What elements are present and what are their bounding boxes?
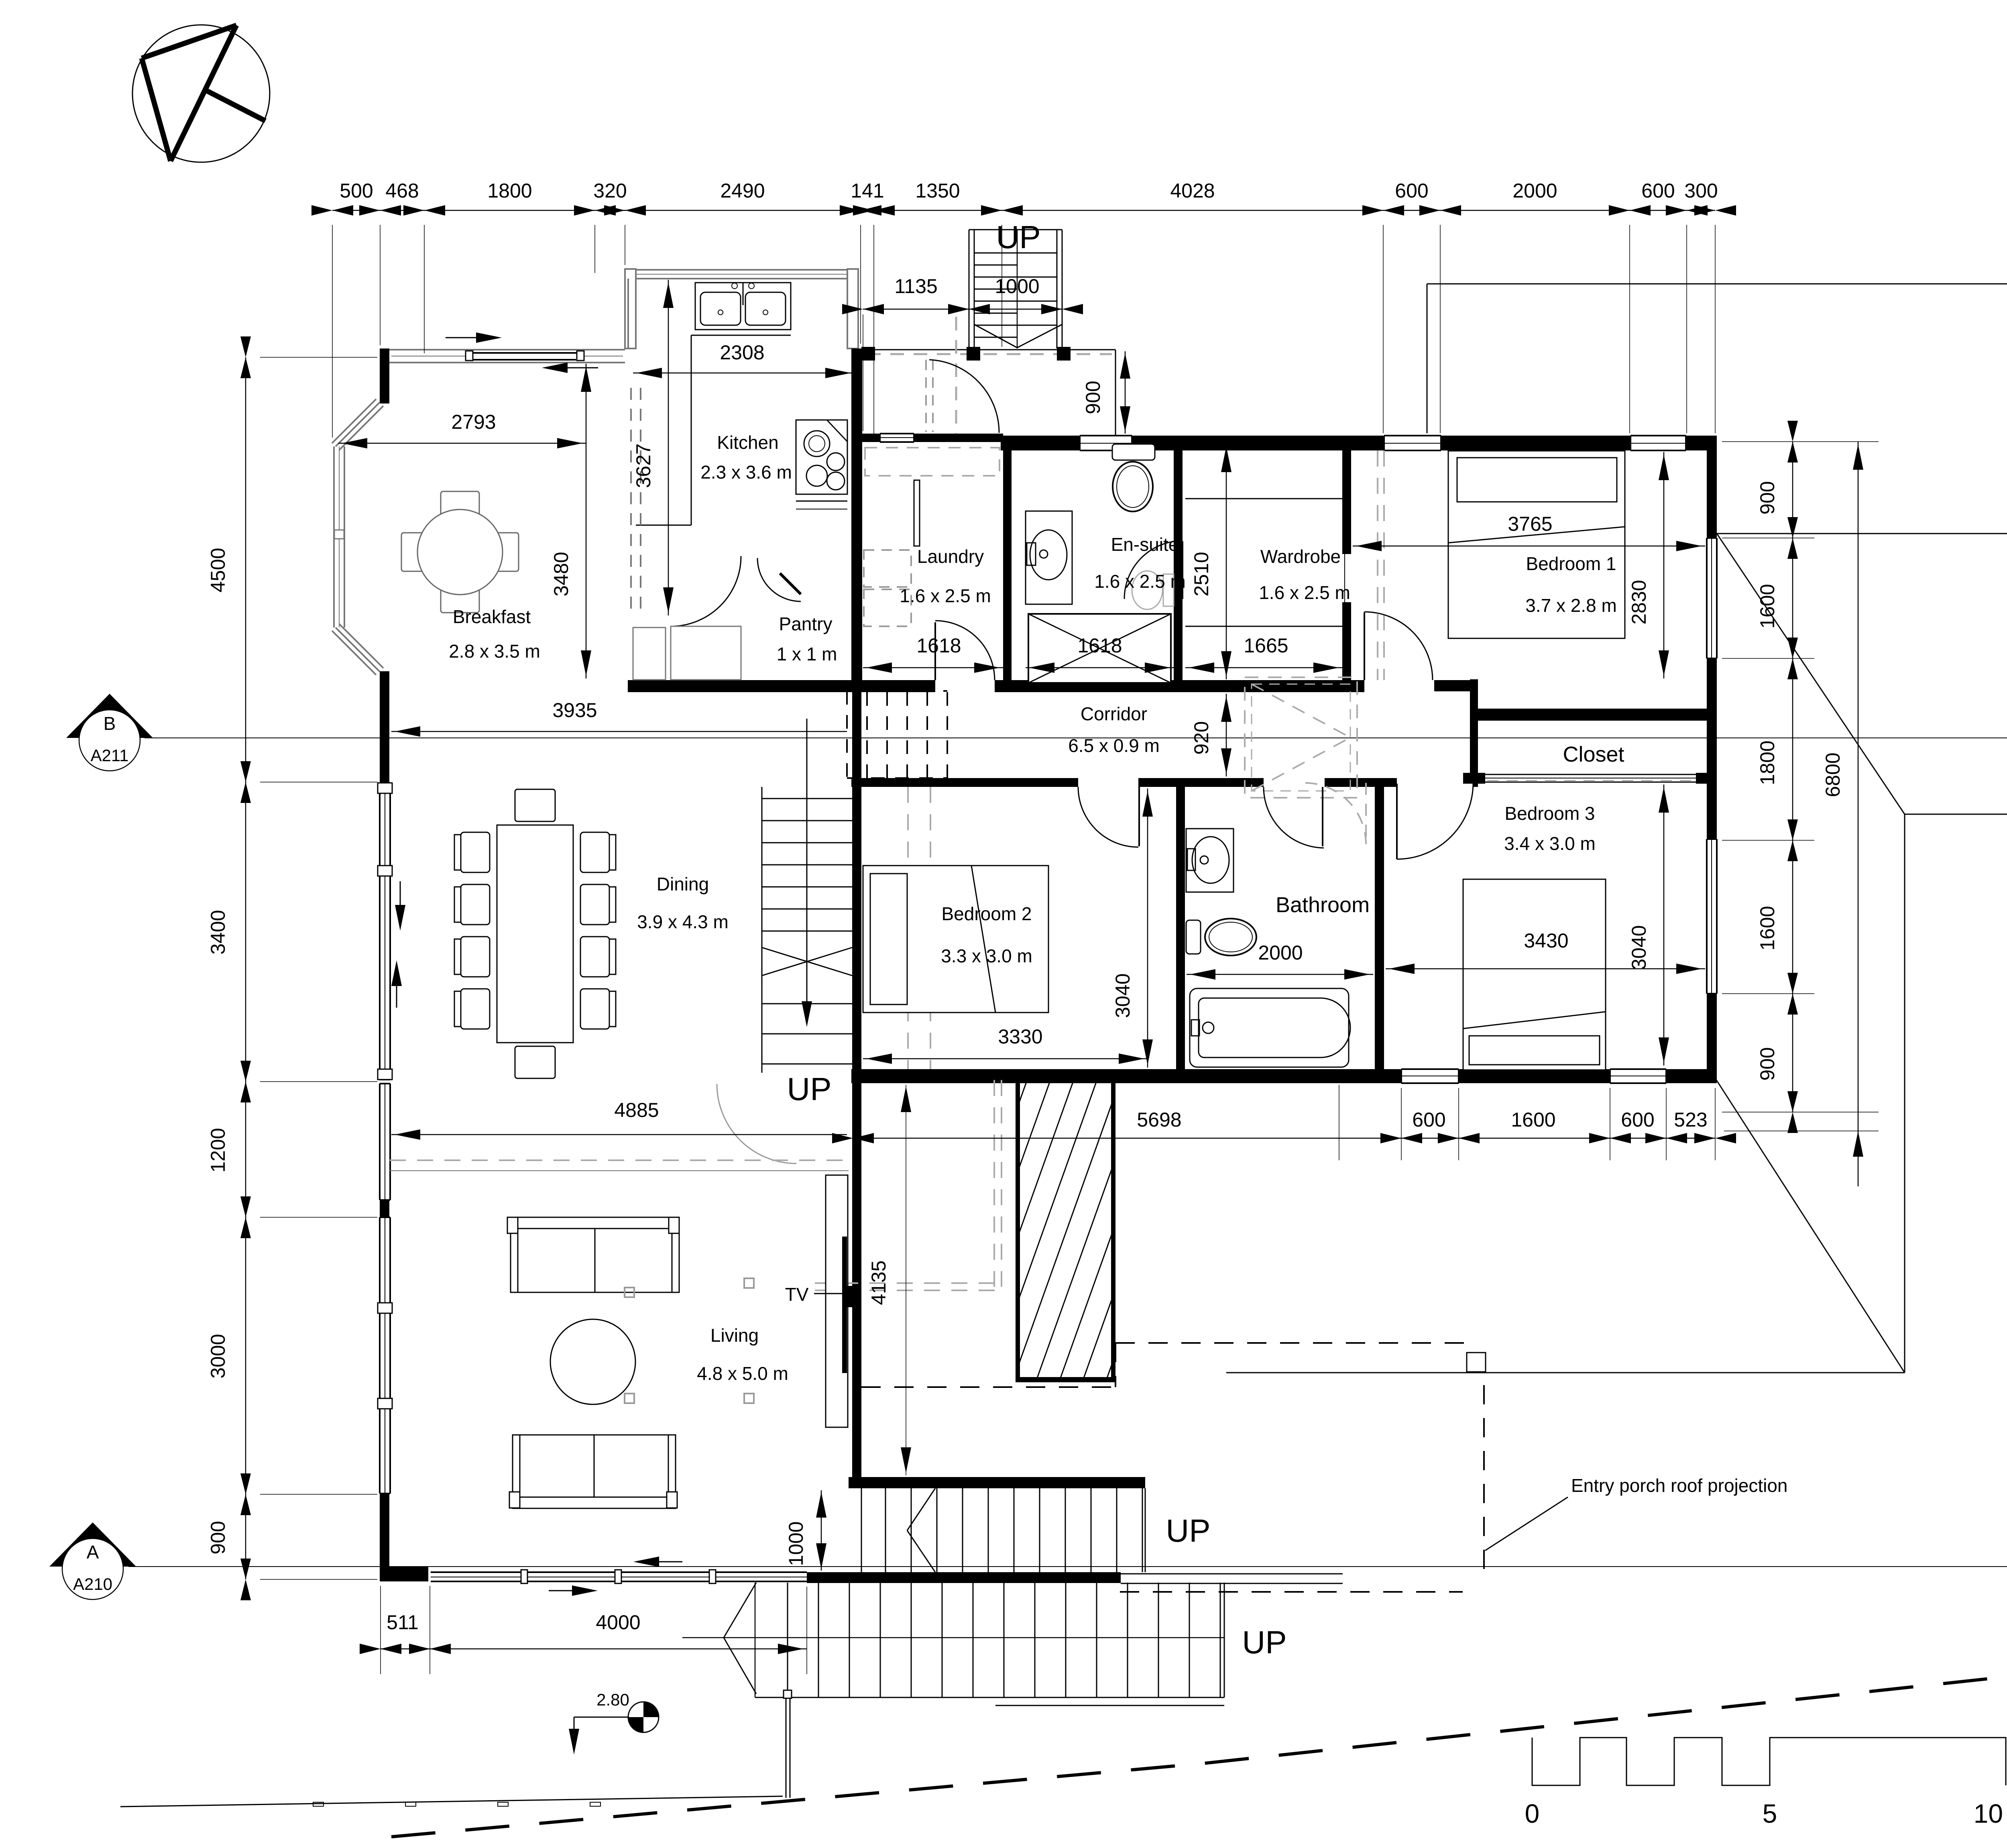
svg-text:Closet: Closet	[1563, 742, 1624, 766]
svg-text:Bathroom: Bathroom	[1276, 893, 1370, 917]
svg-text:1800: 1800	[487, 179, 532, 202]
svg-text:UP: UP	[787, 1071, 831, 1107]
svg-text:600: 600	[1395, 179, 1428, 202]
svg-text:4500: 4500	[207, 548, 229, 592]
svg-text:3765: 3765	[1508, 513, 1552, 535]
svg-text:900: 900	[1082, 381, 1104, 414]
svg-text:2490: 2490	[720, 179, 765, 202]
svg-text:1135: 1135	[894, 275, 938, 297]
svg-text:1600: 1600	[1756, 584, 1779, 628]
svg-text:4000: 4000	[596, 1611, 640, 1634]
svg-text:Wardrobe: Wardrobe	[1260, 546, 1341, 567]
svg-text:0: 0	[1525, 1799, 1540, 1828]
svg-text:320: 320	[593, 179, 627, 202]
svg-text:6800: 6800	[1822, 752, 1844, 797]
svg-text:5: 5	[1763, 1799, 1777, 1828]
svg-text:5698: 5698	[1137, 1108, 1181, 1131]
svg-text:Laundry: Laundry	[917, 546, 984, 567]
svg-text:Breakfast: Breakfast	[453, 606, 531, 627]
svg-text:2.8 x 3.5 m: 2.8 x 3.5 m	[449, 641, 540, 662]
svg-text:2.3 x 3.6 m: 2.3 x 3.6 m	[700, 462, 792, 483]
svg-text:2510: 2510	[1190, 552, 1213, 596]
svg-text:Dining: Dining	[657, 874, 709, 894]
svg-text:900: 900	[1756, 1047, 1779, 1080]
svg-text:1665: 1665	[1244, 634, 1288, 657]
svg-text:900: 900	[207, 1521, 229, 1554]
svg-text:1800: 1800	[1756, 740, 1779, 785]
svg-text:3330: 3330	[998, 1025, 1042, 1048]
svg-text:3430: 3430	[1524, 929, 1568, 952]
svg-text:UP: UP	[996, 219, 1040, 255]
svg-text:B: B	[104, 713, 116, 734]
svg-text:500: 500	[340, 179, 373, 202]
svg-text:1.6 x 2.5 m: 1.6 x 2.5 m	[900, 585, 991, 606]
svg-text:900: 900	[1756, 481, 1779, 514]
svg-text:1000: 1000	[995, 275, 1039, 297]
svg-text:Bedroom 1: Bedroom 1	[1526, 553, 1616, 574]
svg-text:2308: 2308	[720, 341, 764, 364]
svg-text:A211: A211	[91, 746, 129, 765]
svg-text:3480: 3480	[550, 552, 572, 596]
svg-text:A210: A210	[73, 1575, 112, 1593]
svg-text:2.80: 2.80	[596, 1690, 629, 1709]
svg-text:Living: Living	[710, 1325, 759, 1346]
svg-text:4028: 4028	[1170, 179, 1215, 202]
svg-text:3627: 3627	[632, 443, 655, 488]
svg-text:3400: 3400	[207, 910, 229, 954]
svg-text:2000: 2000	[1258, 941, 1303, 964]
svg-text:3.4 x 3.0 m: 3.4 x 3.0 m	[1504, 833, 1596, 854]
svg-text:Corridor: Corridor	[1081, 703, 1147, 724]
svg-text:1350: 1350	[915, 179, 960, 202]
svg-text:523: 523	[1674, 1108, 1707, 1131]
svg-text:4135: 4135	[867, 1260, 890, 1305]
svg-text:3935: 3935	[552, 699, 597, 721]
svg-text:920: 920	[1190, 721, 1213, 754]
svg-text:4.8 x 5.0 m: 4.8 x 5.0 m	[697, 1363, 788, 1384]
svg-text:A: A	[87, 1542, 99, 1563]
svg-text:141: 141	[851, 179, 884, 202]
svg-text:600: 600	[1412, 1108, 1445, 1131]
svg-text:10 m: 10 m	[1974, 1799, 2007, 1828]
svg-text:1600: 1600	[1511, 1108, 1555, 1131]
svg-text:511: 511	[387, 1611, 419, 1634]
svg-text:1.6 x 2.5 m: 1.6 x 2.5 m	[1094, 571, 1186, 592]
svg-text:1618: 1618	[916, 634, 961, 657]
svg-text:Bedroom 2: Bedroom 2	[941, 903, 1032, 924]
svg-text:Bedroom 3: Bedroom 3	[1504, 803, 1595, 824]
svg-text:1000: 1000	[785, 1521, 807, 1566]
svg-text:UP: UP	[1242, 1624, 1286, 1660]
svg-text:600: 600	[1641, 179, 1675, 202]
svg-text:Kitchen: Kitchen	[717, 432, 778, 453]
svg-text:1200: 1200	[207, 1128, 229, 1172]
svg-text:Pantry: Pantry	[779, 613, 833, 634]
svg-text:2830: 2830	[1628, 580, 1650, 624]
svg-text:468: 468	[385, 179, 419, 202]
svg-text:UP: UP	[1166, 1513, 1210, 1548]
svg-text:3040: 3040	[1111, 973, 1134, 1018]
svg-text:3.3 x 3.0 m: 3.3 x 3.0 m	[941, 945, 1032, 966]
svg-text:1 x 1 m: 1 x 1 m	[777, 644, 837, 664]
svg-text:1.6 x 2.5 m: 1.6 x 2.5 m	[1259, 582, 1350, 603]
svg-text:2793: 2793	[451, 411, 496, 433]
svg-text:3.9 x 4.3 m: 3.9 x 4.3 m	[637, 911, 729, 932]
svg-text:3.7 x 2.8 m: 3.7 x 2.8 m	[1525, 595, 1617, 616]
svg-text:3000: 3000	[207, 1334, 229, 1378]
svg-text:2000: 2000	[1512, 179, 1557, 202]
svg-text:6.5 x 0.9 m: 6.5 x 0.9 m	[1068, 735, 1160, 756]
svg-text:En-suite: En-suite	[1111, 534, 1179, 555]
svg-text:3040: 3040	[1628, 925, 1650, 970]
svg-text:300: 300	[1684, 179, 1718, 202]
svg-text:1618: 1618	[1077, 634, 1122, 657]
svg-text:Entry porch roof projection: Entry porch roof projection	[1571, 1475, 1788, 1496]
svg-text:1600: 1600	[1756, 906, 1779, 950]
svg-text:TV: TV	[785, 1284, 809, 1305]
svg-text:4885: 4885	[614, 1099, 659, 1121]
svg-text:600: 600	[1621, 1108, 1654, 1131]
